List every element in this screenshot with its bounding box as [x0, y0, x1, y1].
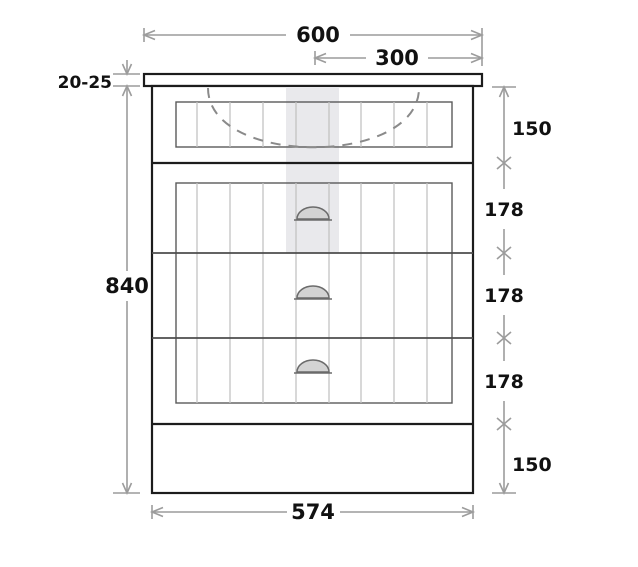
- dim-label-drawer3-height: 178: [484, 371, 524, 393]
- dim-label-drawer1-height: 178: [484, 199, 524, 221]
- dim-center-width: 300: [315, 46, 482, 70]
- dim-section-heights: 150 178 178 178 150: [484, 87, 552, 493]
- dim-label-apron-height: 150: [512, 118, 552, 140]
- dim-label-overall-width: 600: [296, 23, 340, 47]
- dim-label-plinth-height: 150: [512, 454, 552, 476]
- dim-label-carcass-width: 574: [291, 500, 335, 524]
- dim-label-center-width: 300: [375, 46, 419, 70]
- dim-overall-width: 600: [144, 23, 482, 66]
- elevation-svg: 600 300 20-25 840: [0, 0, 638, 567]
- worktop: [144, 74, 482, 86]
- dim-label-drawer2-height: 178: [484, 285, 524, 307]
- dim-overall-height: 840: [105, 86, 149, 493]
- dim-label-worktop-thickness: 20-25: [58, 73, 112, 93]
- dim-label-overall-height: 840: [105, 274, 149, 298]
- center-highlight-strip: [286, 87, 339, 253]
- vanity-dimension-drawing: 600 300 20-25 840: [0, 0, 638, 567]
- dim-carcass-width: 574: [152, 500, 473, 524]
